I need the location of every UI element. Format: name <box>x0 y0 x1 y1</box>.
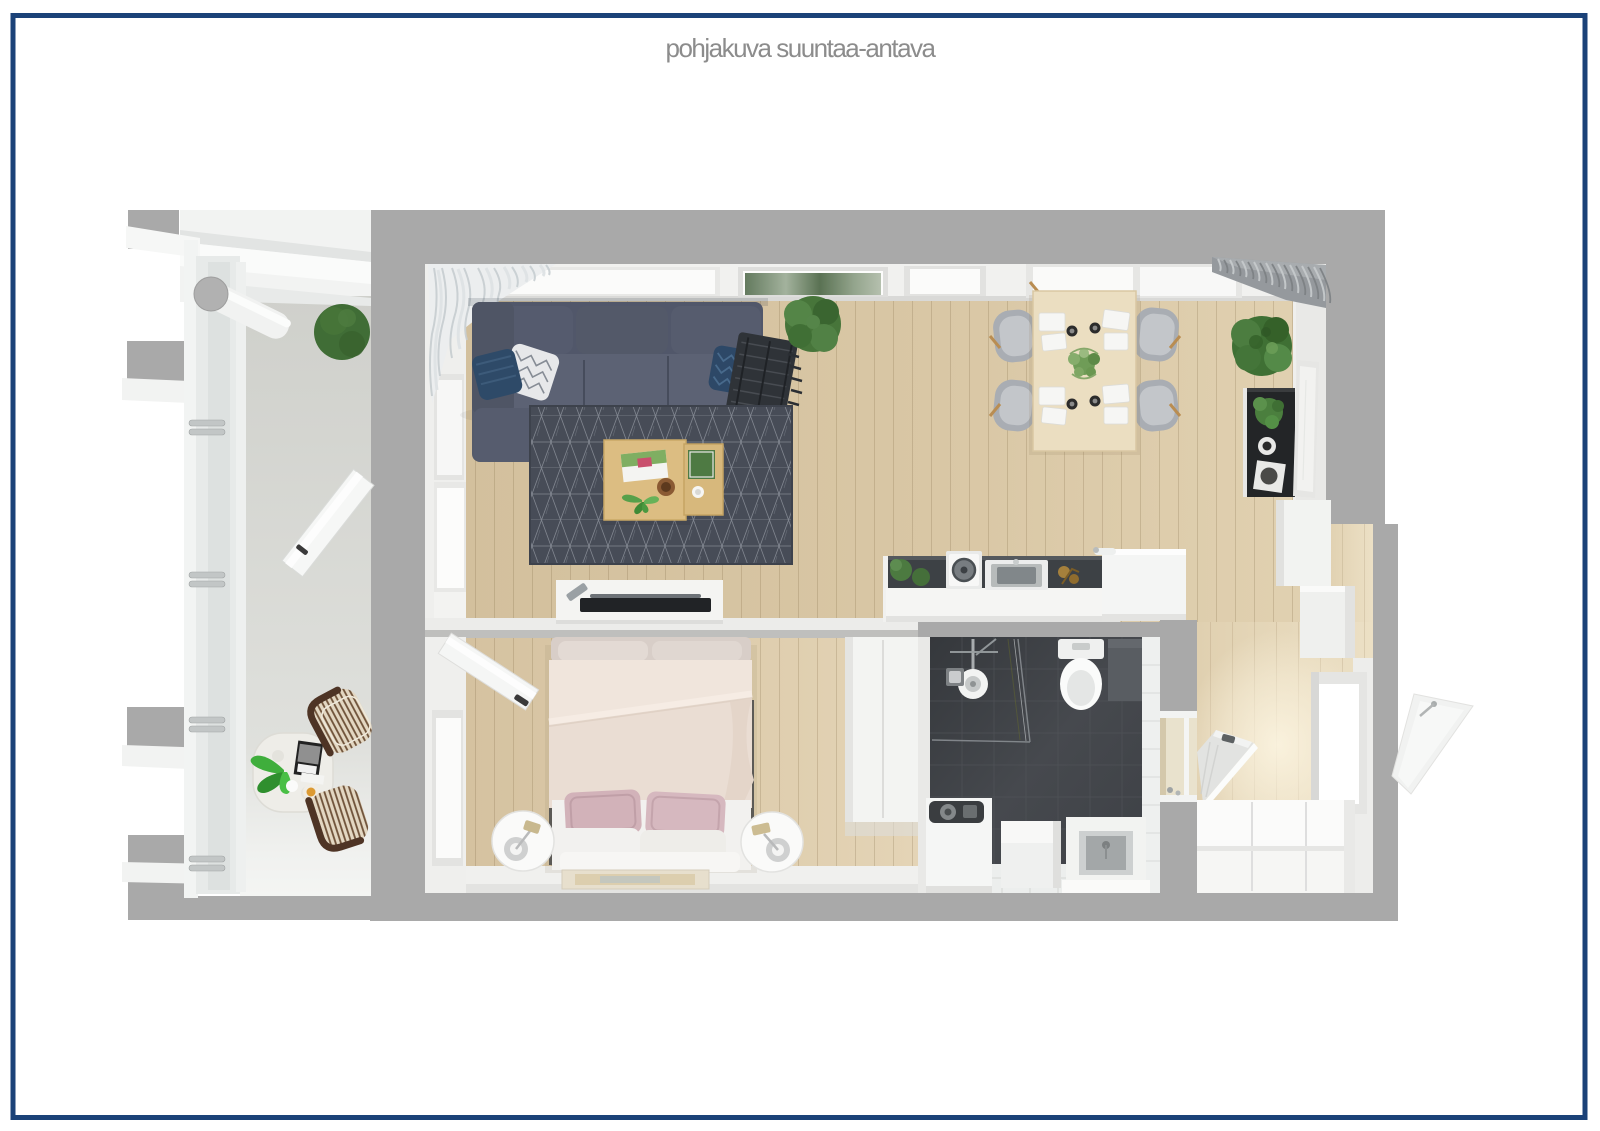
svg-text:pohjakuva suuntaa-antava: pohjakuva suuntaa-antava <box>665 33 936 63</box>
